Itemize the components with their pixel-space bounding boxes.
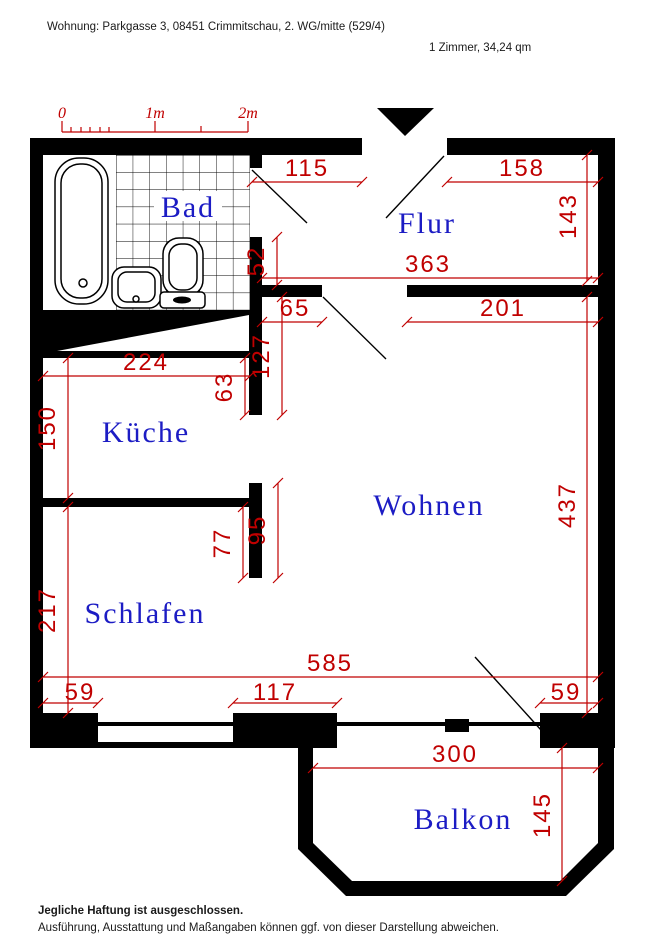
dim-stub-schlafen-side: 77: [209, 502, 248, 583]
dim-wohnen-top-wall: 201: [402, 295, 603, 327]
toilet-bowl: [169, 244, 197, 290]
dim-text-158: 158: [499, 155, 545, 182]
dim-text-201: 201: [480, 295, 526, 322]
sink-tap: [133, 296, 139, 302]
wall-kueche-schlafen: [43, 498, 250, 507]
dim-text-95: 95: [244, 515, 271, 546]
balkon-door-divider: [445, 719, 469, 732]
dim-text-63: 63: [211, 372, 238, 403]
dim-bottom-pier-left: 59: [38, 679, 103, 708]
schlafen-window-opening: [98, 713, 233, 742]
footer-disclaimer-bold: Jegliche Haftung ist ausgeschlossen.: [38, 905, 243, 917]
room-label-wohnen: Wohnen: [373, 489, 484, 522]
wall-bad-flur-top: [249, 138, 262, 168]
dim-text-115: 115: [285, 155, 329, 182]
dim-text-585: 585: [307, 650, 353, 677]
room-label-flur: Flur: [398, 207, 456, 240]
floor-plan-drawing: 0 1m 2m: [0, 0, 654, 947]
schlafen-window-frame-line: [98, 722, 233, 726]
schlafen-window-sill-line: [98, 742, 233, 748]
dim-text-117: 117: [253, 679, 297, 706]
dim-text-59-left: 59: [65, 679, 96, 706]
dim-text-217: 217: [34, 587, 61, 633]
bathtub-drain: [79, 279, 87, 287]
wohnen-door-swing: [323, 297, 386, 359]
dim-wohnen-pier-left: 65: [257, 295, 327, 327]
dim-text-77: 77: [209, 528, 236, 559]
dim-text-127: 127: [248, 333, 275, 379]
dim-text-145: 145: [529, 792, 556, 838]
dim-text-363: 363: [405, 251, 451, 278]
dim-wohnen-depth: 437: [554, 292, 592, 718]
wall-bottom-left-pier: [30, 713, 98, 748]
dim-text-65: 65: [280, 295, 311, 322]
scale-label-0: 0: [58, 105, 66, 122]
dim-bottom-pier-mid: 117: [228, 679, 342, 708]
dim-text-300: 300: [432, 741, 478, 768]
bad-fixtures: [55, 155, 250, 310]
scale-label-2m: 2m: [238, 105, 258, 122]
toilet-button: [173, 297, 191, 304]
floor-plan-page: Wohnung: Parkgasse 3, 08451 Crimmitschau…: [0, 0, 654, 947]
room-label-kueche: Küche: [102, 416, 190, 449]
scale-bar: 0 1m 2m: [58, 105, 258, 132]
dim-text-224: 224: [123, 349, 169, 376]
dim-flur-width: 363: [257, 251, 603, 283]
dim-bottom-total: 585: [38, 650, 603, 682]
dim-text-437: 437: [554, 482, 581, 528]
wall-bottom-right-pier: [540, 713, 615, 748]
dim-text-143: 143: [555, 193, 582, 239]
dim-text-59-right: 59: [551, 679, 582, 706]
entrance-marker-icon: [377, 108, 434, 136]
balkon-door-frame-line: [337, 722, 540, 726]
dim-flur-top-right: 158: [442, 155, 603, 187]
room-label-bad: Bad: [161, 191, 215, 224]
dim-flur-height: 143: [555, 150, 592, 286]
bathtub-inner: [61, 164, 102, 298]
room-label-balkon: Balkon: [414, 803, 513, 836]
dim-flur-top-left: 115: [247, 155, 367, 187]
dim-bottom-pier-right: 59: [535, 679, 603, 708]
wall-top-left: [30, 138, 362, 155]
dim-text-52: 52: [243, 246, 270, 277]
wall-bottom-mid-pier: [233, 713, 337, 748]
room-label-schlafen: Schlafen: [85, 597, 206, 630]
schlafen-window: [98, 713, 233, 748]
wall-right: [598, 138, 615, 748]
scale-label-1m: 1m: [145, 105, 165, 122]
door-swings: [252, 156, 541, 730]
dim-kueche-door-pier: 63: [211, 353, 250, 420]
dim-text-150: 150: [34, 405, 61, 451]
footer-disclaimer: Ausführung, Ausstattung und Maßangaben k…: [38, 922, 499, 934]
